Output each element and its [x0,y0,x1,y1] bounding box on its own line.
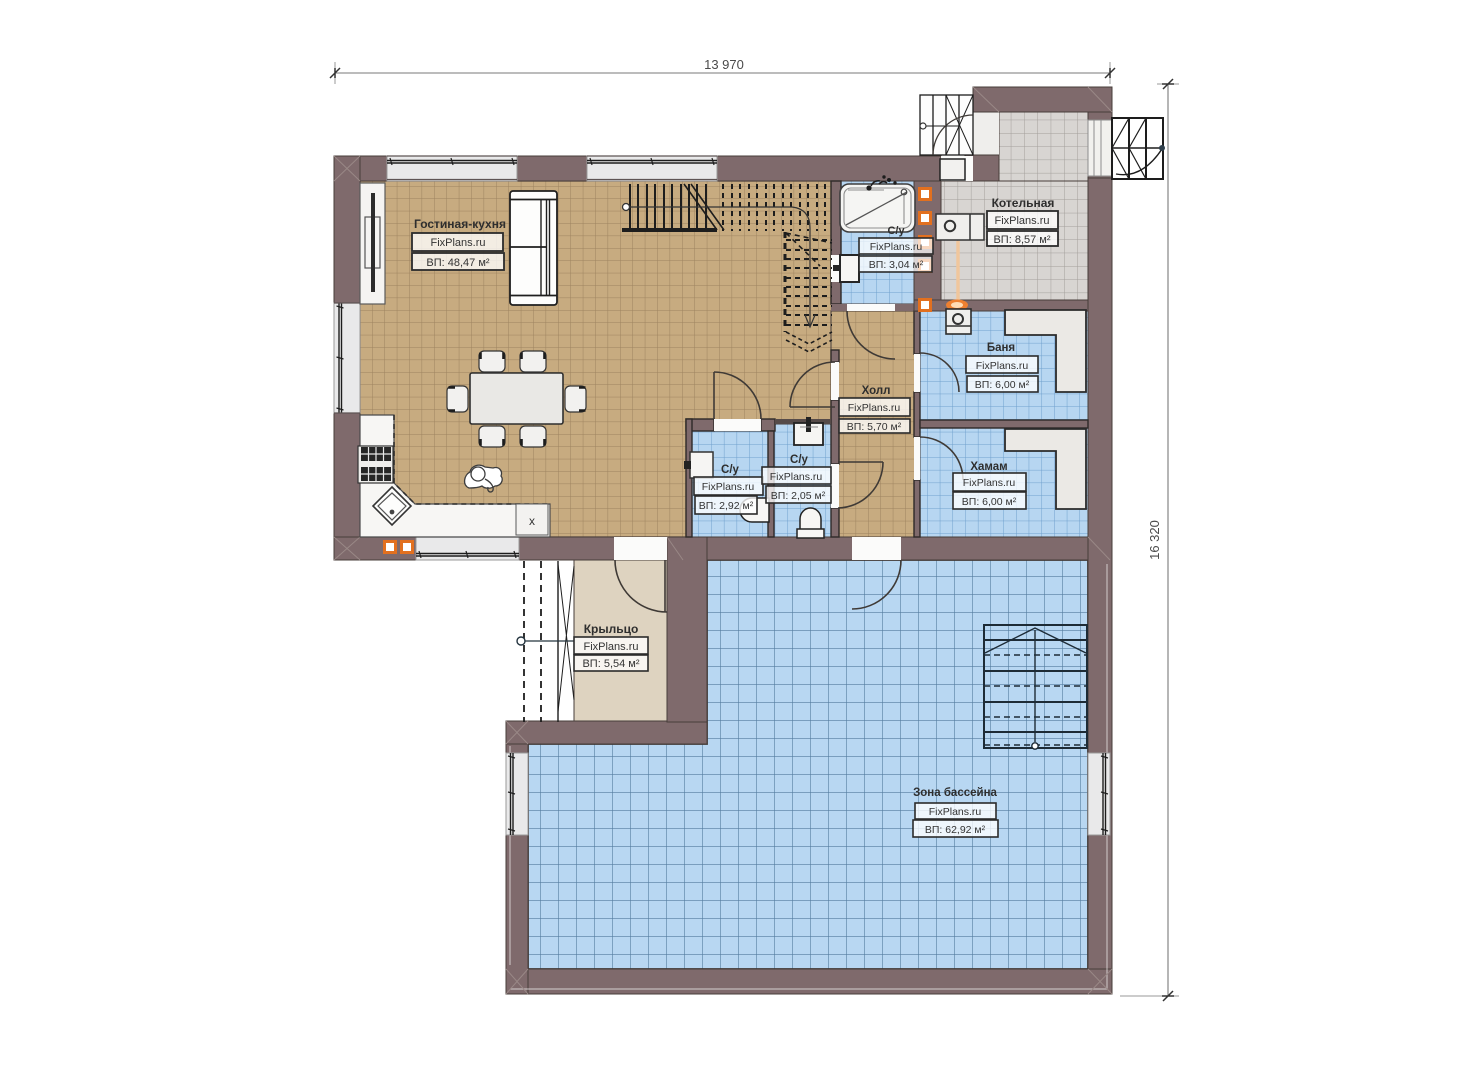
svg-text:Гостиная-кухня: Гостиная-кухня [414,217,506,231]
svg-text:Крыльцо: Крыльцо [584,622,639,636]
svg-text:ВП: 5,70 м²: ВП: 5,70 м² [847,421,902,433]
svg-text:13 970: 13 970 [704,57,744,72]
svg-text:ВП: 6,00 м²: ВП: 6,00 м² [962,496,1017,508]
svg-text:FixPlans.ru: FixPlans.ru [430,237,485,249]
svg-text:FixPlans.ru: FixPlans.ru [963,477,1016,489]
svg-text:Баня: Баня [987,342,1015,354]
svg-text:FixPlans.ru: FixPlans.ru [929,806,982,818]
svg-text:ВП: 6,00 м²: ВП: 6,00 м² [975,379,1030,391]
svg-text:ВП: 62,92 м²: ВП: 62,92 м² [925,824,986,836]
svg-text:Котельная: Котельная [992,196,1055,210]
svg-text:ВП: 48,47 м²: ВП: 48,47 м² [426,257,490,269]
svg-text:FixPlans.ru: FixPlans.ru [994,215,1049,227]
svg-text:Зона бассейна: Зона бассейна [913,787,997,799]
svg-text:ВП: 5,54 м²: ВП: 5,54 м² [582,658,639,670]
svg-text:С/у: С/у [887,225,905,237]
svg-text:Хамам: Хамам [970,461,1007,473]
svg-text:16 320: 16 320 [1147,520,1162,560]
svg-text:FixPlans.ru: FixPlans.ru [770,471,823,483]
svg-text:Холл: Холл [862,385,891,397]
svg-text:FixPlans.ru: FixPlans.ru [870,241,923,253]
svg-text:FixPlans.ru: FixPlans.ru [583,641,638,653]
svg-text:ВП: 8,57 м²: ВП: 8,57 м² [993,234,1050,246]
svg-text:С/у: С/у [721,464,740,476]
svg-text:ВП: 3,04 м²: ВП: 3,04 м² [869,259,924,271]
svg-text:x: x [529,514,535,528]
svg-text:С/у: С/у [790,454,809,466]
svg-text:ВП: 2,92 м²: ВП: 2,92 м² [699,500,754,512]
svg-text:FixPlans.ru: FixPlans.ru [976,360,1029,372]
svg-text:FixPlans.ru: FixPlans.ru [702,481,755,493]
svg-text:FixPlans.ru: FixPlans.ru [848,402,901,414]
svg-text:ВП: 2,05 м²: ВП: 2,05 м² [771,490,826,502]
